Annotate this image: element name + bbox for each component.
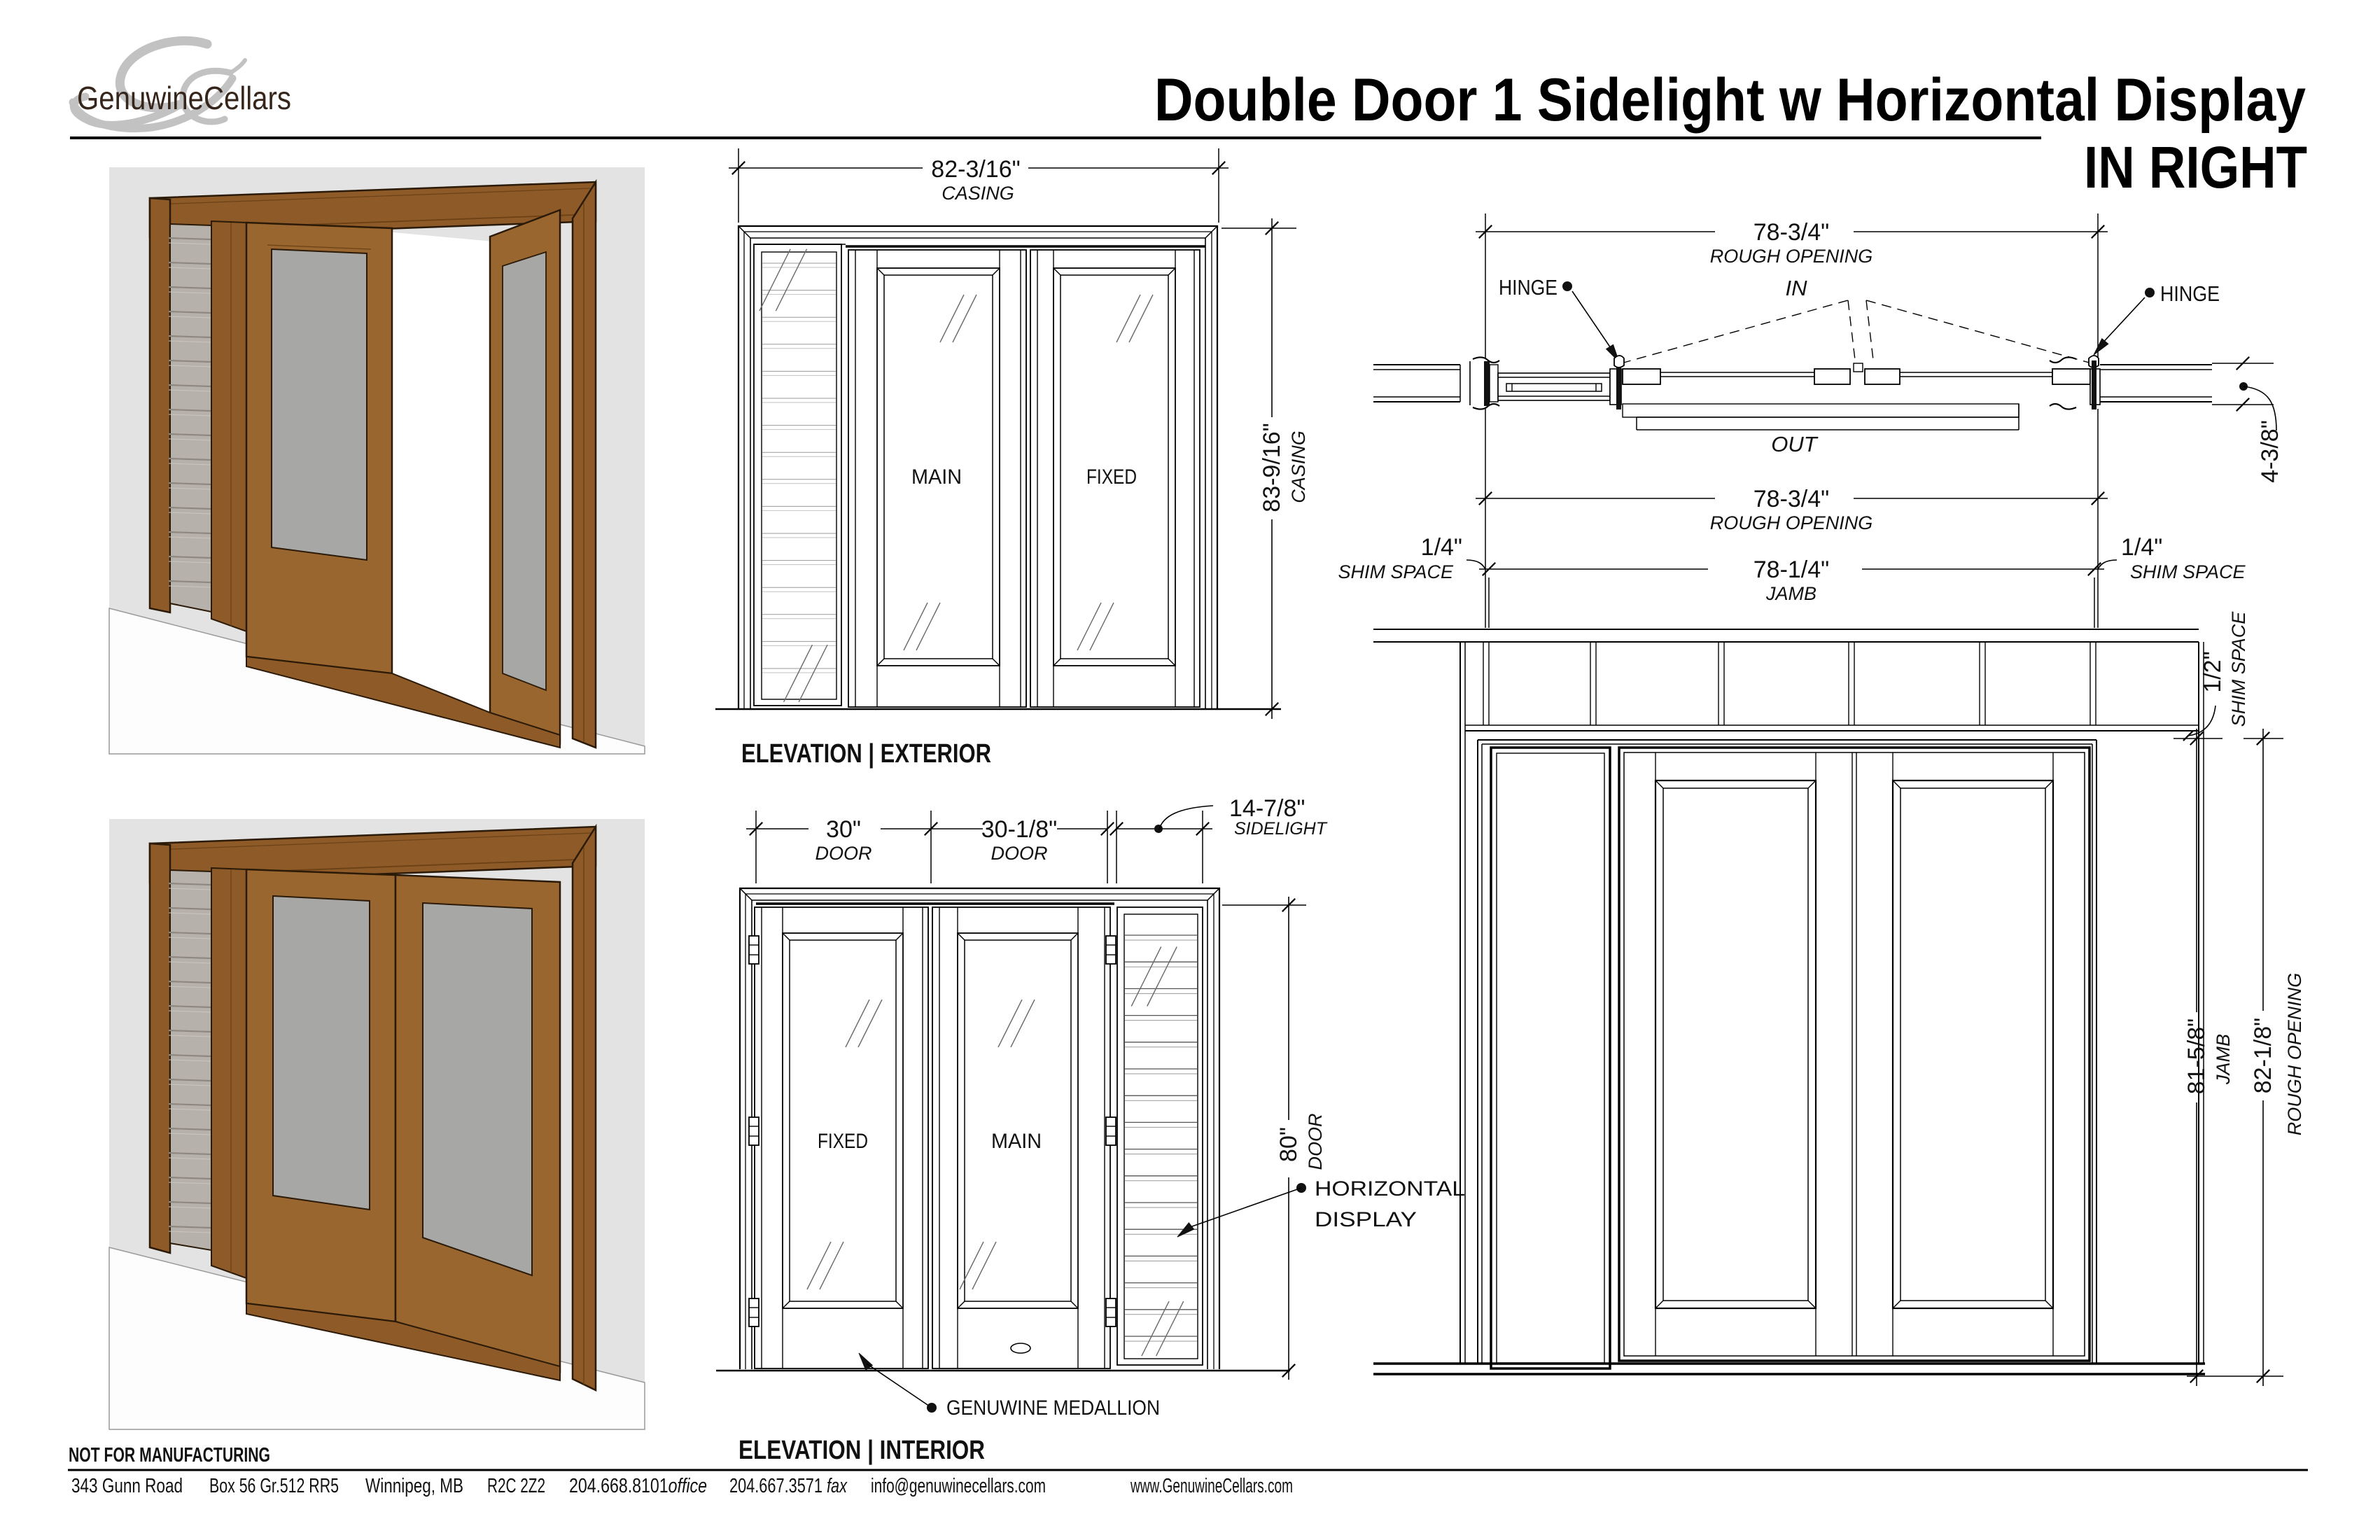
- svg-text:204.667.3571 fax: 204.667.3571 fax: [729, 1475, 848, 1497]
- svg-text:80": 80": [1275, 1127, 1302, 1162]
- svg-text:HINGE: HINGE: [1499, 275, 1557, 300]
- svg-text:78-3/4": 78-3/4": [1753, 219, 1829, 246]
- svg-text:30-1/8": 30-1/8": [981, 816, 1057, 843]
- svg-text:SIDELIGHT: SIDELIGHT: [1234, 819, 1328, 839]
- svg-text:DISPLAY: DISPLAY: [1315, 1208, 1417, 1231]
- svg-text:JAMB: JAMB: [1765, 583, 1816, 604]
- svg-text:ELEVATION | INTERIOR: ELEVATION | INTERIOR: [738, 1436, 985, 1465]
- svg-text:82-1/8": 82-1/8": [2250, 1018, 2276, 1093]
- svg-text:DOOR: DOOR: [991, 843, 1048, 864]
- svg-text:DOOR: DOOR: [1305, 1114, 1326, 1170]
- svg-text:FIXED: FIXED: [818, 1130, 868, 1153]
- svg-text:R2C 2Z2: R2C 2Z2: [487, 1475, 545, 1497]
- svg-text:JAMB: JAMB: [2213, 1034, 2234, 1085]
- svg-text:1/4": 1/4": [2121, 534, 2162, 561]
- svg-text:81-5/8": 81-5/8": [2183, 1018, 2210, 1094]
- svg-text:HORIZONTAL: HORIZONTAL: [1315, 1177, 1465, 1200]
- svg-text:30": 30": [826, 816, 861, 843]
- svg-text:343 Gunn Road: 343 Gunn Road: [71, 1475, 183, 1497]
- svg-text:FIXED: FIXED: [1086, 465, 1137, 489]
- svg-text:MAIN: MAIN: [991, 1130, 1042, 1153]
- svg-text:ROUGH OPENING: ROUGH OPENING: [2284, 973, 2305, 1136]
- svg-text:ELEVATION | EXTERIOR: ELEVATION | EXTERIOR: [741, 739, 991, 769]
- svg-text:www.GenuwineCellars.com: www.GenuwineCellars.com: [1130, 1475, 1293, 1497]
- svg-text:NOT FOR MANUFACTURING: NOT FOR MANUFACTURING: [69, 1444, 270, 1466]
- svg-text:ROUGH OPENING: ROUGH OPENING: [1710, 246, 1873, 267]
- svg-text:14-7/8": 14-7/8": [1229, 795, 1305, 822]
- svg-text:info@genuwinecellars.com: info@genuwinecellars.com: [871, 1475, 1046, 1497]
- svg-text:Box 56 Gr.512 RR5: Box 56 Gr.512 RR5: [209, 1475, 339, 1497]
- svg-text:CASING: CASING: [941, 183, 1014, 204]
- svg-text:78-3/4": 78-3/4": [1753, 486, 1829, 512]
- svg-text:OUT: OUT: [1771, 432, 1819, 456]
- svg-text:Winnipeg, MB: Winnipeg, MB: [365, 1475, 463, 1497]
- svg-text:78-1/4": 78-1/4": [1753, 556, 1829, 583]
- svg-text:ROUGH OPENING: ROUGH OPENING: [1710, 512, 1873, 533]
- svg-text:1/4": 1/4": [1421, 534, 1462, 561]
- svg-text:1/2": 1/2": [2199, 651, 2226, 692]
- svg-text:Double Door 1 Sidelight w Hori: Double Door 1 Sidelight w Horizontal Dis…: [1154, 66, 2306, 134]
- svg-text:HINGE: HINGE: [2160, 281, 2220, 306]
- svg-text:83-9/16": 83-9/16": [1259, 423, 1285, 512]
- svg-text:MAIN: MAIN: [911, 465, 962, 489]
- svg-text:CASING: CASING: [1288, 430, 1309, 503]
- svg-text:DOOR: DOOR: [815, 843, 872, 864]
- svg-text:GENUWINE MEDALLION: GENUWINE MEDALLION: [946, 1396, 1160, 1420]
- svg-text:SHIM SPACE: SHIM SPACE: [1338, 561, 1454, 582]
- svg-text:IN: IN: [1786, 276, 1808, 300]
- svg-text:SHIM SPACE: SHIM SPACE: [2130, 561, 2246, 582]
- svg-text:4-3/8": 4-3/8": [2257, 420, 2283, 483]
- svg-text:GenuwineCellars: GenuwineCellars: [77, 80, 291, 116]
- svg-text:IN RIGHT: IN RIGHT: [2084, 134, 2307, 200]
- svg-text:82-3/16": 82-3/16": [931, 156, 1020, 183]
- svg-text:SHIM SPACE: SHIM SPACE: [2228, 611, 2249, 727]
- svg-text:204.668.8101office: 204.668.8101office: [569, 1475, 707, 1497]
